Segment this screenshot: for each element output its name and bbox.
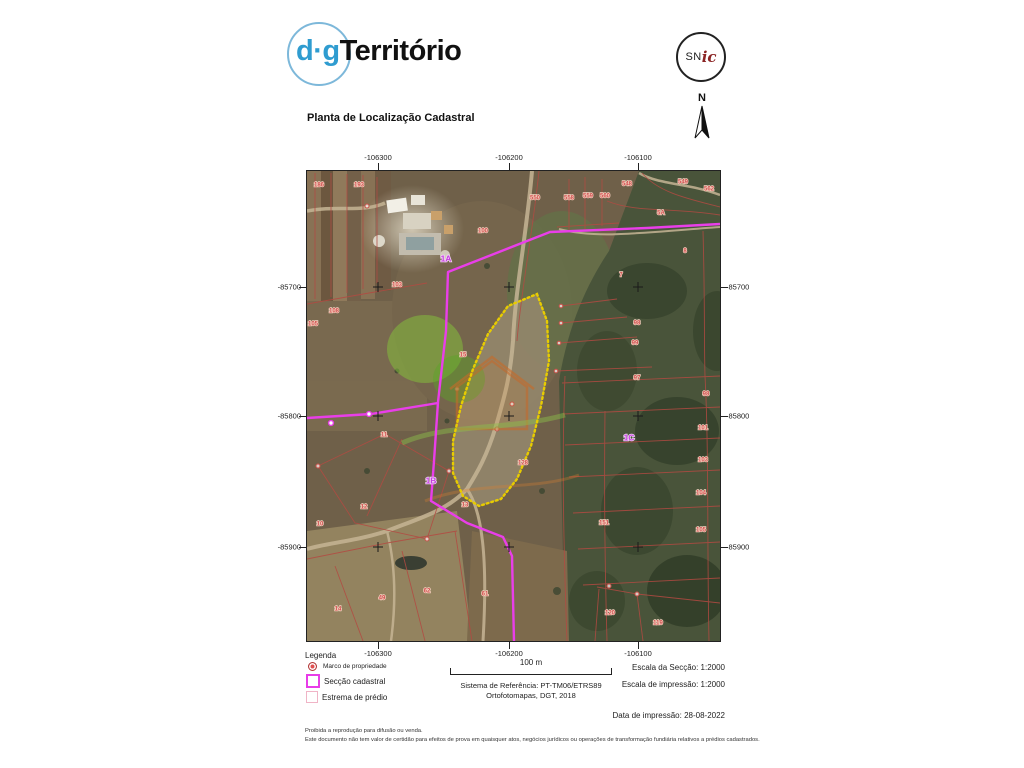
coordinate-label: -106200 (495, 649, 523, 658)
snic-seal: SNic (676, 32, 726, 82)
north-label: N (688, 92, 716, 104)
parcel-label: 193 (354, 183, 365, 189)
parcel-label: 559 (583, 194, 594, 200)
parcel-label: 108 (329, 309, 340, 315)
parcel-label: 103 (392, 283, 403, 289)
grid-tick (509, 163, 510, 170)
dgterritorio-logo: d·gTerritório (287, 22, 467, 88)
legend-title: Legenda (305, 651, 465, 660)
parcel-label: 558 (564, 196, 575, 202)
legend-item-marco: Marco de propriedade (305, 662, 465, 671)
snic-ic-text: ic (702, 48, 717, 66)
parcel-label: 105 (696, 528, 707, 534)
parcel-label: 100 (478, 229, 489, 235)
parcel-label: 104 (696, 491, 707, 497)
disclaimer: Proibida a reprodução para difusão ou ve… (305, 727, 1005, 745)
coordinate-label: -106300 (364, 153, 392, 162)
legend-label: Estrema de prédio (322, 693, 387, 702)
section-label: 1A (441, 253, 452, 263)
parcel-label: 101 (698, 426, 709, 432)
coordinate-label: -85700 (726, 283, 749, 292)
seccao-cadastral-icon (306, 674, 320, 688)
parcel-label: 120 (605, 611, 616, 617)
page-title: Planta de Localização Cadastral (307, 112, 475, 124)
parcel-label: 62 (424, 589, 431, 595)
coordinate-label: -106100 (624, 153, 652, 162)
parcel-label: 15 (460, 353, 467, 359)
grid-tick (509, 642, 510, 649)
print-date: Data de impressão: 28-08-2022 (520, 711, 725, 720)
disclaimer-line2: Este documento não tem valor de certidão… (305, 736, 1005, 745)
cadastral-plan-page: d·gTerritório SNic Planta de Localização… (0, 0, 1024, 768)
legend-label: Marco de propriedade (323, 663, 387, 670)
parcel-label: 128 (518, 461, 529, 467)
print-scale: Escala de impressão: 1:2000 (520, 680, 725, 689)
parcel-label: 61 (482, 592, 489, 598)
grid-tick (378, 642, 379, 649)
section-scale: Escala da Secção: 1:2000 (520, 663, 725, 672)
property-mark-icon (308, 662, 317, 671)
estrema-predio-icon (306, 691, 318, 703)
coordinate-label: -85800 (278, 412, 301, 421)
parcel-label: 151 (599, 521, 610, 527)
pond (395, 556, 427, 570)
parcel-label: 99 (632, 341, 639, 347)
north-arrow-icon (688, 104, 716, 142)
parcel-label: 12 (361, 505, 368, 511)
parcel-label: 97 (634, 376, 641, 382)
coordinate-label: -106200 (495, 153, 523, 162)
parcel-label: 186 (314, 183, 325, 189)
parcel-label: 49 (379, 596, 386, 602)
parcel-label: 10 (317, 522, 324, 528)
parcel-label: 119 (653, 621, 663, 627)
disclaimer-line1: Proibida a reprodução para difusão ou ve… (305, 727, 1005, 736)
snic-sn-text: SN (685, 51, 701, 63)
legend-label: Secção cadastral (324, 677, 385, 686)
coordinate-label: -85900 (278, 543, 301, 552)
parcel-label: 13 (462, 503, 469, 509)
grid-tick (638, 163, 639, 170)
section-label: 1C (624, 432, 635, 442)
parcel-label: 105 (308, 322, 319, 328)
seccao-vertex (367, 412, 372, 417)
parcel-label: 550 (530, 196, 541, 202)
section-label: 1B (426, 475, 437, 485)
parcel-label: 98 (634, 321, 641, 327)
parcel-label: 98 (703, 392, 710, 398)
grid-tick (378, 163, 379, 170)
parcel-label: 5A (657, 211, 665, 217)
dg-logo-dg: d·g (296, 35, 340, 67)
parcel-label: 549 (678, 180, 689, 186)
coordinate-label: -85700 (278, 283, 301, 292)
coordinate-label: -85800 (726, 412, 749, 421)
north-arrow: N (688, 92, 716, 144)
coordinate-label: -85900 (726, 543, 749, 552)
scales-block: Escala da Secção: 1:2000 Escala de impre… (520, 663, 725, 720)
orthophoto-map: 1861935505585595605485495625A10010810510… (307, 171, 720, 641)
grid-tick (638, 642, 639, 649)
seccao-vertex (329, 421, 334, 426)
parcel-label: 14 (335, 607, 342, 613)
parcel-label: 560 (600, 194, 611, 200)
parcel-label: 548 (622, 182, 633, 188)
parcel-label: 11 (381, 433, 388, 439)
coordinate-label: -106100 (624, 649, 652, 658)
parcel-label: 562 (704, 187, 715, 193)
parcel-label: 103 (698, 458, 709, 464)
dg-logo-territorio: Território (340, 35, 462, 67)
cadastral-map[interactable]: 1861935505585595605485495625A10010810510… (306, 170, 721, 642)
